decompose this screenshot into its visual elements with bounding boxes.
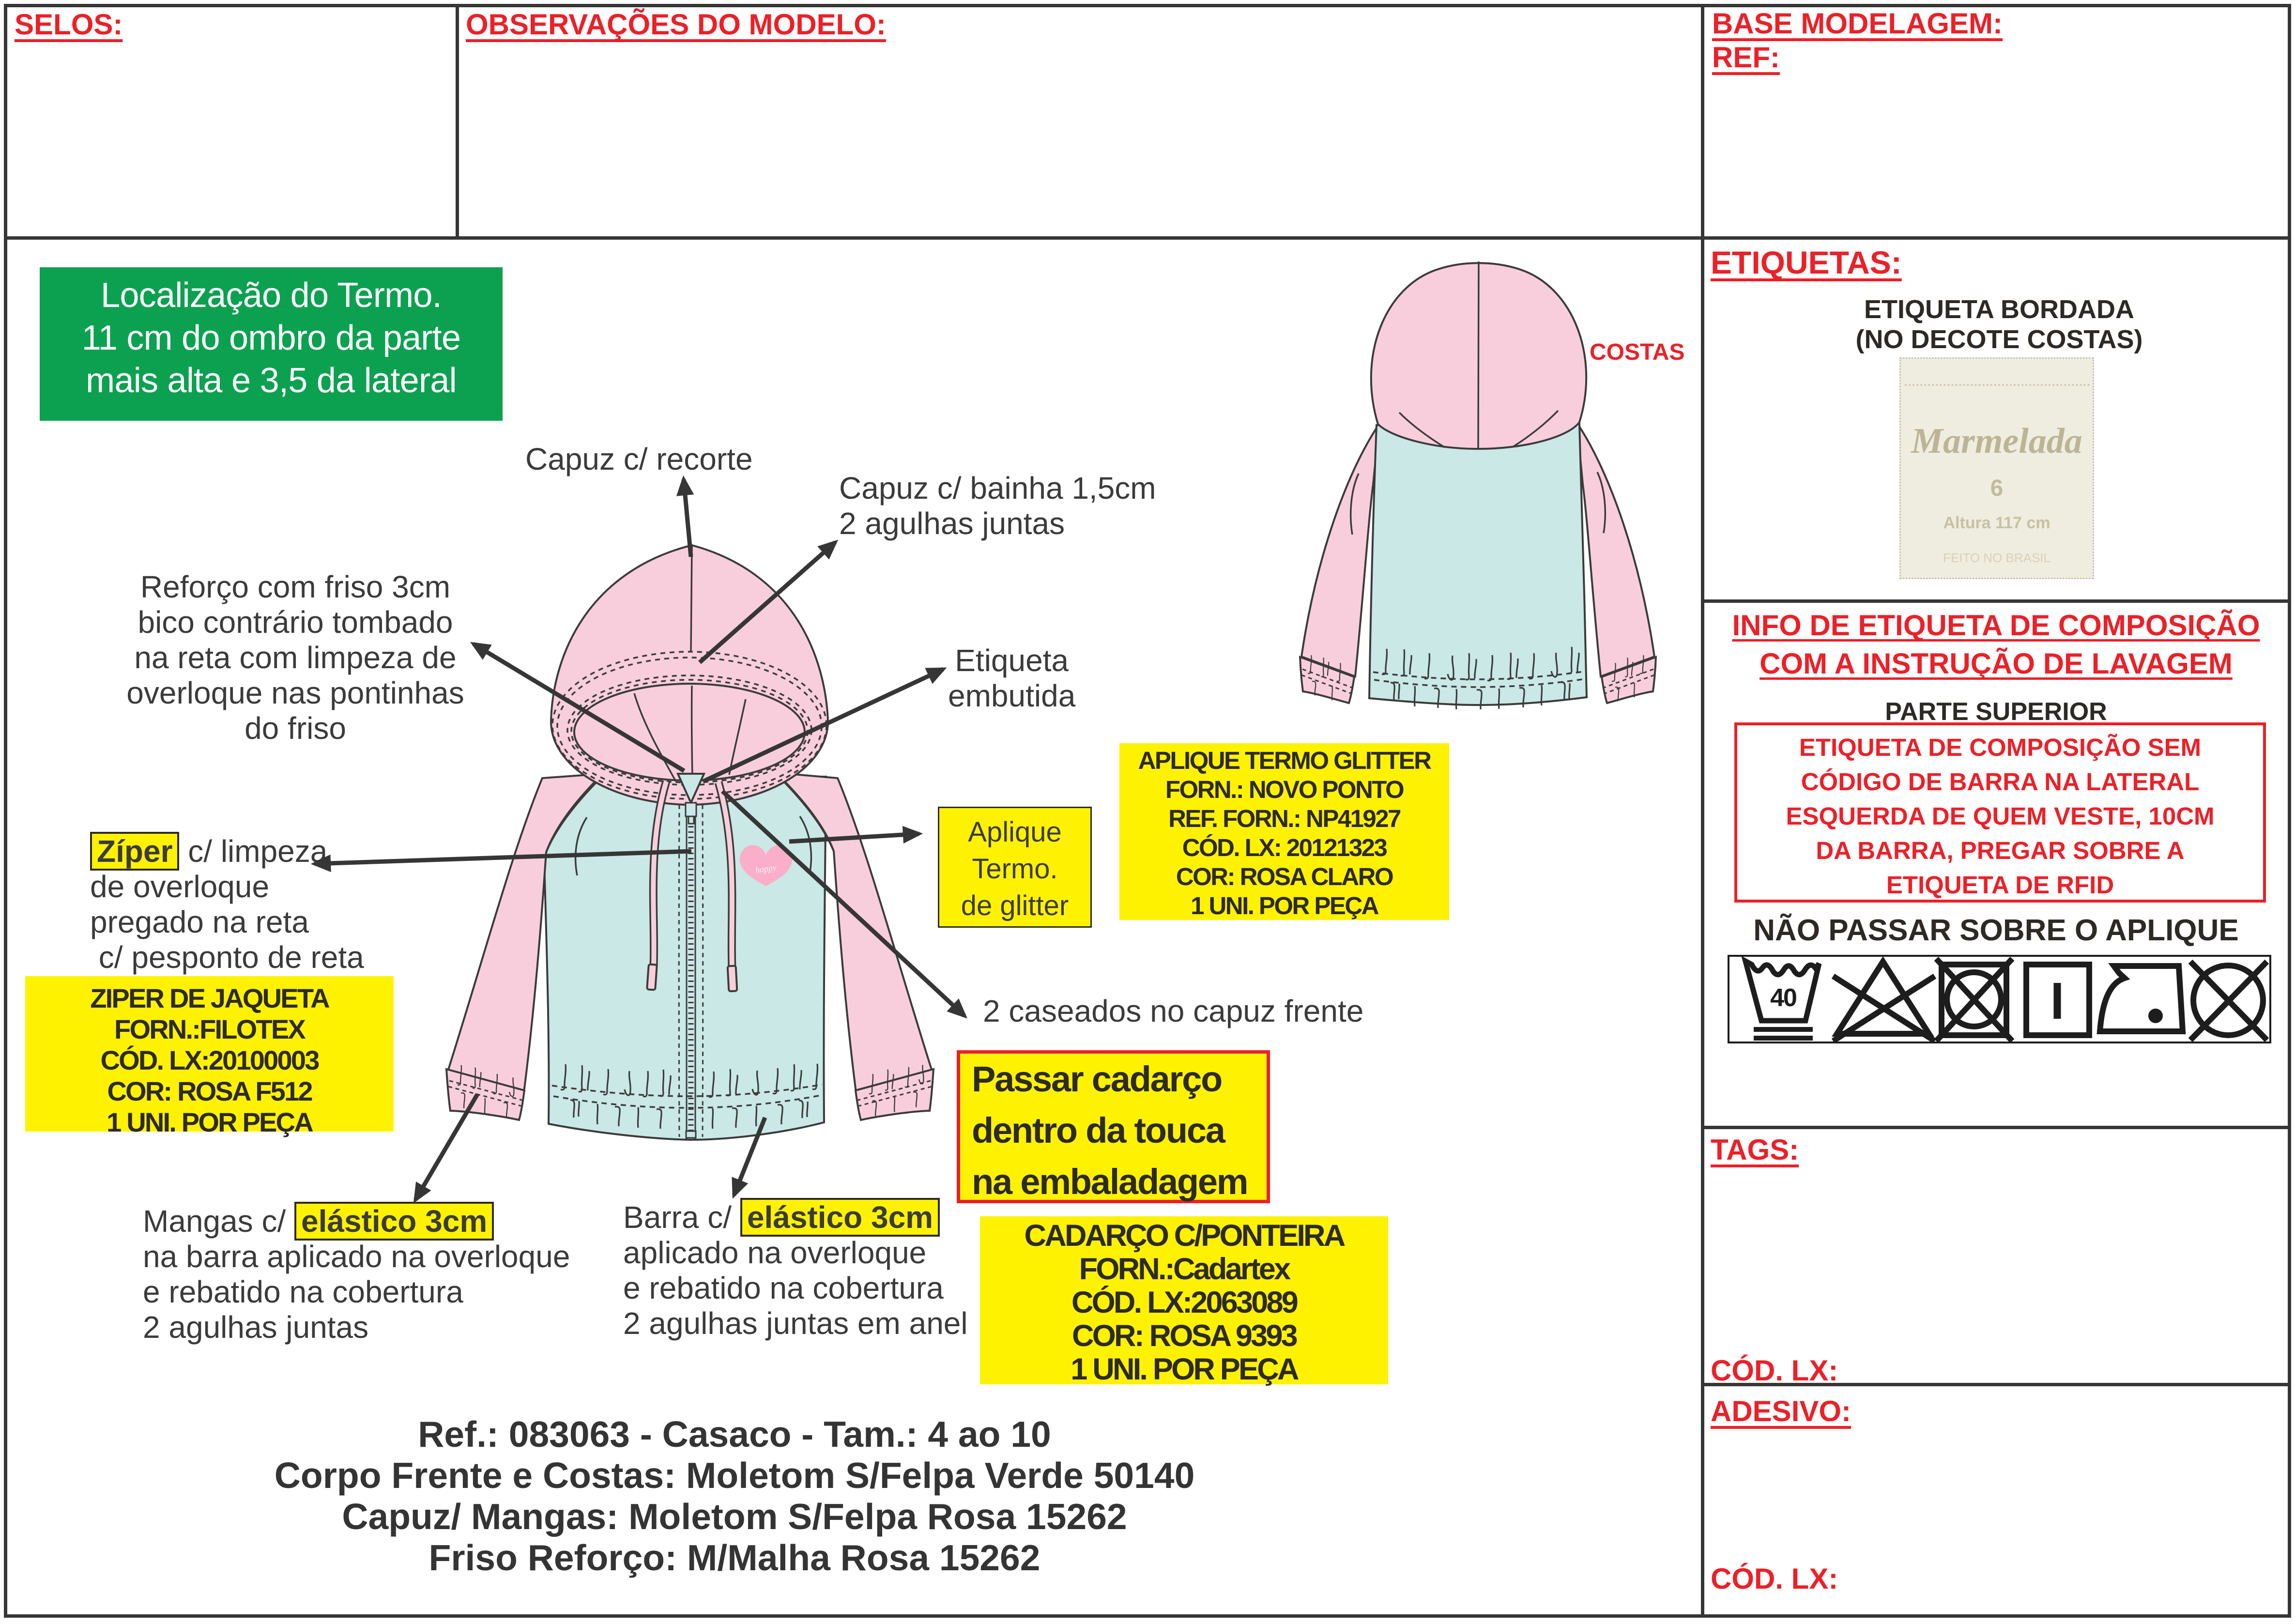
svg-text:40: 40 (1770, 984, 1796, 1012)
